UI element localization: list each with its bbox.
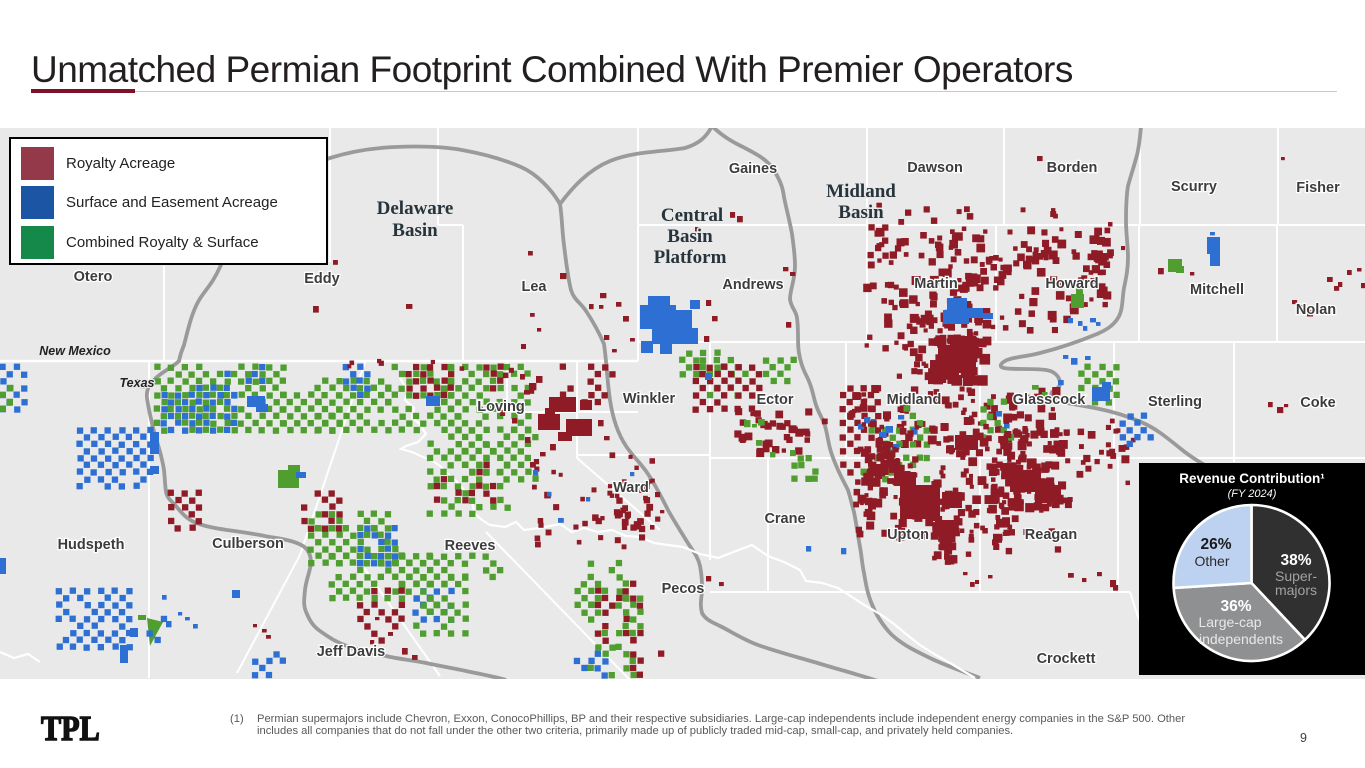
svg-text:Basin: Basin	[392, 220, 438, 241]
svg-text:Howard: Howard	[1045, 276, 1098, 292]
svg-text:Dawson: Dawson	[907, 160, 963, 176]
svg-text:Large-cap: Large-cap	[1198, 614, 1261, 630]
svg-text:Culberson: Culberson	[212, 536, 284, 552]
svg-text:Glasscock: Glasscock	[1013, 392, 1086, 408]
svg-text:Platform: Platform	[654, 247, 727, 268]
svg-text:Mitchell: Mitchell	[1190, 282, 1244, 298]
svg-text:Crane: Crane	[764, 511, 805, 527]
svg-text:Central: Central	[661, 205, 723, 226]
svg-text:Jeff Davis: Jeff Davis	[317, 644, 386, 660]
svg-text:Midland: Midland	[826, 181, 896, 202]
svg-text:Texas: Texas	[120, 376, 155, 390]
svg-text:Reagan: Reagan	[1025, 527, 1077, 543]
svg-text:Martin: Martin	[914, 276, 958, 292]
svg-text:independents: independents	[1199, 631, 1283, 647]
svg-text:Winkler: Winkler	[623, 391, 676, 407]
svg-text:Scurry: Scurry	[1171, 179, 1217, 195]
svg-text:38%: 38%	[1280, 552, 1311, 569]
svg-text:Crockett: Crockett	[1037, 651, 1096, 667]
svg-text:Andrews: Andrews	[722, 277, 783, 293]
svg-text:Coke: Coke	[1300, 395, 1335, 411]
svg-text:Lea: Lea	[522, 279, 548, 295]
svg-text:26%: 26%	[1200, 536, 1231, 553]
svg-text:Nolan: Nolan	[1296, 302, 1336, 318]
svg-text:Basin: Basin	[667, 226, 713, 247]
svg-text:Ector: Ector	[756, 392, 793, 408]
svg-text:Other: Other	[1194, 553, 1229, 569]
svg-text:Otero: Otero	[74, 269, 113, 285]
svg-text:Delaware: Delaware	[377, 198, 454, 219]
svg-text:Basin: Basin	[838, 202, 884, 223]
svg-text:Loving: Loving	[477, 399, 525, 415]
svg-text:Eddy: Eddy	[304, 271, 339, 287]
svg-text:majors: majors	[1275, 582, 1317, 598]
svg-text:Gaines: Gaines	[729, 161, 777, 177]
svg-text:Hudspeth: Hudspeth	[58, 537, 125, 553]
svg-text:Borden: Borden	[1047, 160, 1098, 176]
svg-text:Midland: Midland	[887, 392, 942, 408]
svg-text:Ward: Ward	[613, 480, 649, 496]
svg-text:Sterling: Sterling	[1148, 394, 1202, 410]
svg-text:Fisher: Fisher	[1296, 180, 1340, 196]
svg-text:Upton: Upton	[887, 527, 929, 543]
svg-text:Pecos: Pecos	[662, 581, 705, 597]
svg-text:Reeves: Reeves	[445, 538, 496, 554]
svg-text:New Mexico: New Mexico	[39, 344, 111, 358]
svg-text:36%: 36%	[1220, 598, 1251, 615]
